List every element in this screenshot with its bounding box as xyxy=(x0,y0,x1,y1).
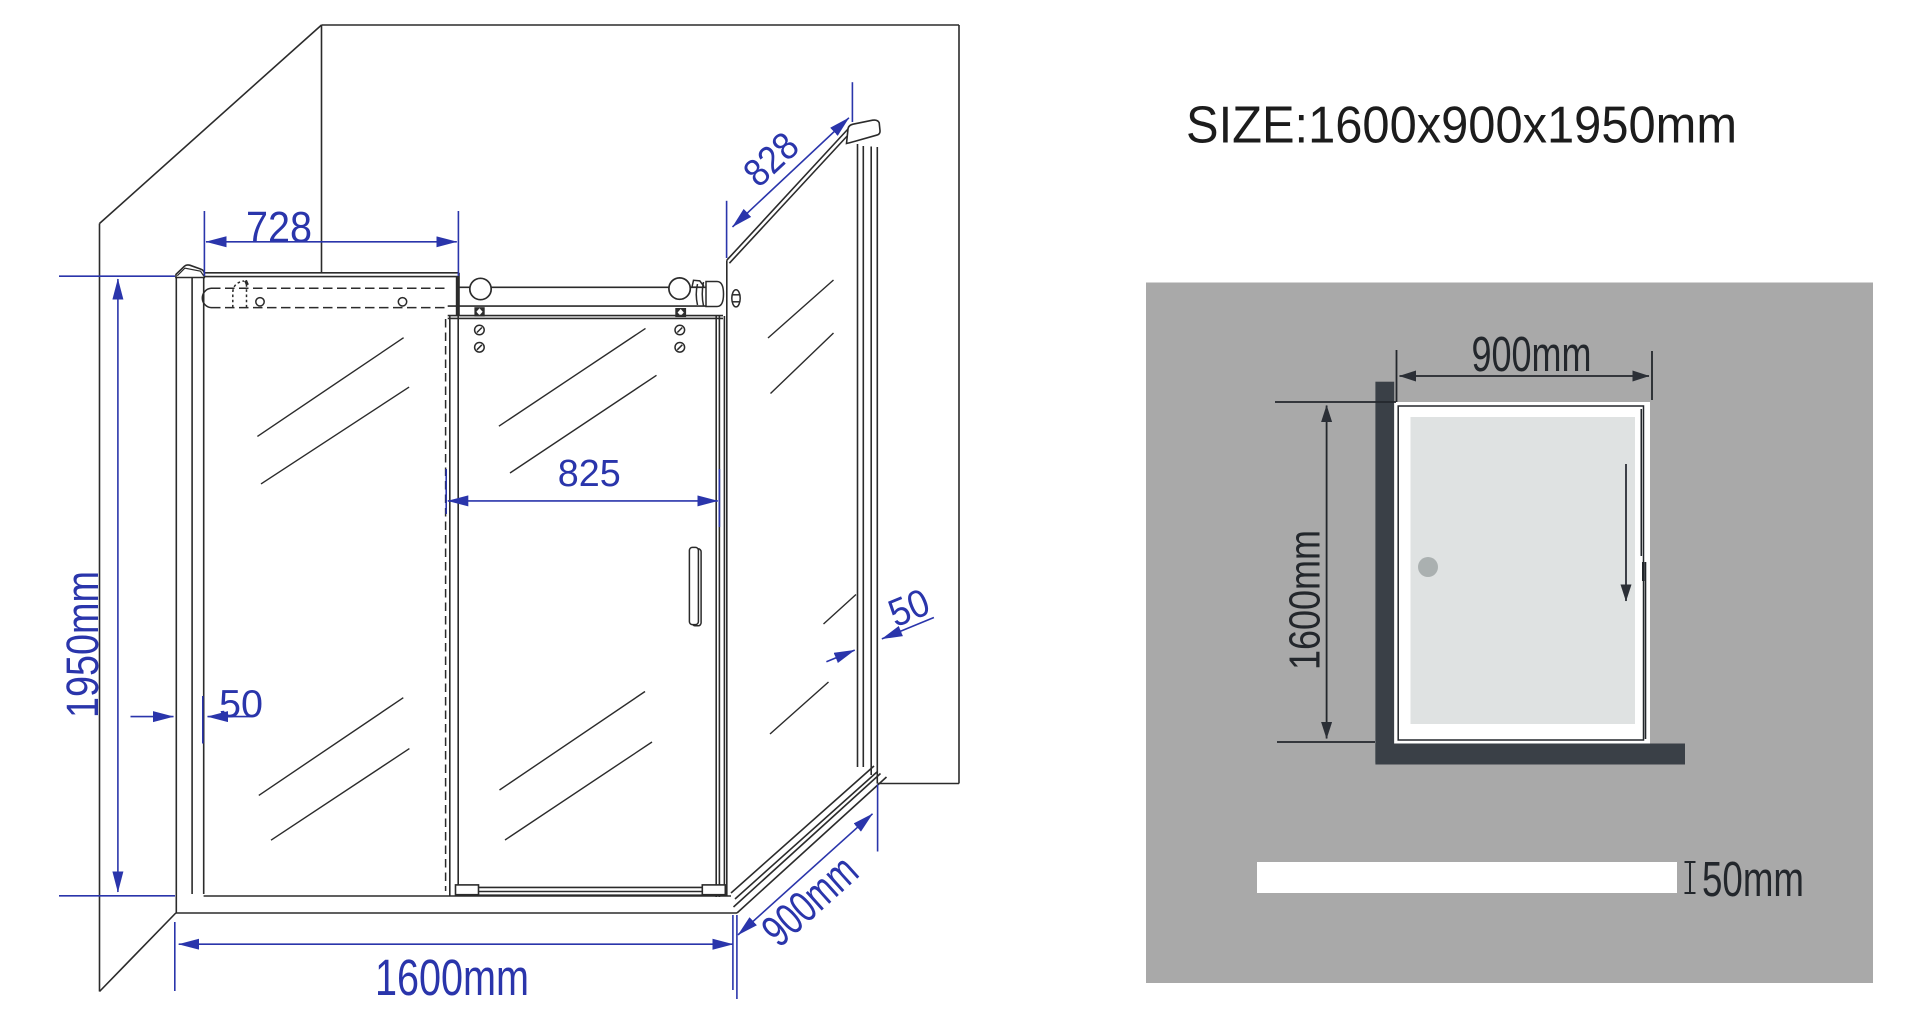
svg-text:SIZE:1600x900x1950mm: SIZE:1600x900x1950mm xyxy=(1186,97,1737,155)
svg-text:1600mm: 1600mm xyxy=(375,949,529,1006)
svg-text:825: 825 xyxy=(558,453,621,495)
svg-text:50mm: 50mm xyxy=(1702,853,1804,907)
svg-text:1950mm: 1950mm xyxy=(57,571,108,718)
svg-text:900mm: 900mm xyxy=(1472,328,1592,382)
svg-text:1600mm: 1600mm xyxy=(1280,530,1329,670)
svg-text:728: 728 xyxy=(246,203,312,252)
svg-text:50: 50 xyxy=(219,683,263,726)
